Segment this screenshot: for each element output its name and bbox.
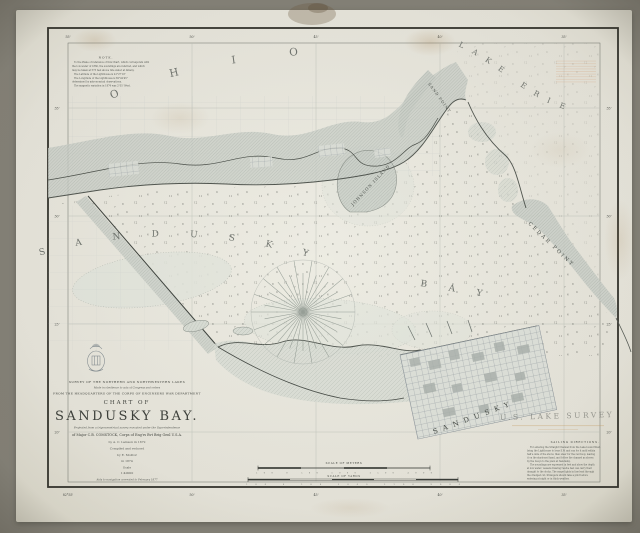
chart-photo: { "labels": { "state": "OHIO", "lake": "… [0, 0, 640, 533]
map-canvas: 8127 9116 [0, 0, 640, 533]
photo-vignette [0, 0, 640, 533]
